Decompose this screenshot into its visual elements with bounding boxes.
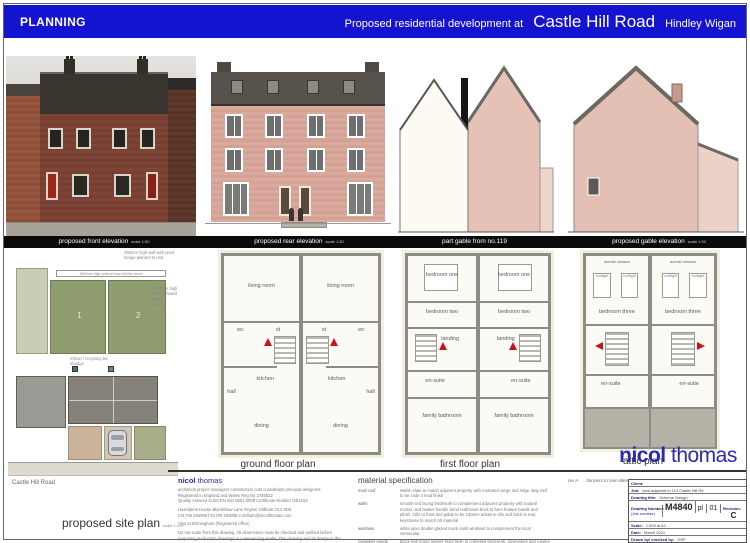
stairs [415,334,437,361]
person-figure [289,208,294,221]
house-right: dormer window rooflight rooflight bedroo… [650,253,717,449]
rooflight [343,80,355,94]
room-bedroom-one: bedroom one [426,272,458,278]
room-en-suite: en-suite [601,381,621,387]
drawing-number-value: M4840 [663,501,696,513]
planning-drawing-sheet: PLANNING Proposed residential developmen… [0,0,750,543]
bin-note: refuse / recycling bin storage [70,356,114,367]
company-quality: Quality Assured to BS EN ISO 9001:2008 C… [178,498,346,504]
room-hall: hall [366,389,375,395]
patio-doors-left [223,182,249,216]
drawn-by-value: GRF [677,537,685,542]
stair-arrow-icon [509,342,517,350]
ground-floor-window [114,174,131,197]
dormer-window-label: dormer window [670,260,696,264]
room-bedroom-one: bedroom one [498,272,530,278]
rooflight [231,80,243,94]
room-en-suite: en-suite [679,381,699,387]
rear-window [225,148,243,172]
front-garden-left [68,426,102,460]
rear-window [265,114,283,138]
rear-elevation-label: proposed rear elevationscale 1:50 [224,238,374,245]
spec-label: walls [358,501,400,523]
fence-note-top: 1800mm high vertical board timber fence [56,270,166,277]
job-value: land adjacent to 119 Castle Hill Rd [642,488,703,493]
revision-value: C [723,511,744,520]
roof-slope-area [585,407,649,447]
road-band [8,462,178,476]
house-right: bedroom one bedroom two landing en-suite… [478,253,551,455]
nicol-thomas-logo: nicol thomas [608,444,748,468]
site-plan: 450mm high wall with privit hedge plante… [8,250,178,512]
drawing-title-value: Scheme Design [659,495,687,500]
rear-window [347,148,365,172]
house-left: bedroom one bedroom two landing en-suite… [405,253,479,455]
new-gable-wall [468,68,540,232]
plot-1-number: 1 [77,311,81,320]
rear-window [225,114,243,138]
front-garden-right [134,426,166,460]
proposed-pair-roof [68,376,158,424]
material-specification-title: material specification [358,476,550,485]
brick-facade [40,114,168,222]
job-label: Job: [631,488,639,493]
planning-title: PLANNING [20,15,86,29]
rear-window [265,148,283,172]
rear-window [307,114,325,138]
first-floor-plan-title: first floor plan [400,459,540,470]
rear-brick-wall [211,106,385,222]
part-gable-label: part gable from no.119 [401,238,551,245]
stair-arrow-icon [264,338,272,346]
room-living: living room [327,283,354,289]
front-elevation-label: proposed front elevationscale 1:50 [29,238,179,245]
spec-text: black half round gutters fixed flush to … [400,539,550,543]
header-bar: PLANNING Proposed residential developmen… [4,5,746,38]
stairs [519,334,541,361]
company-disclaimer: Do not scale from this drawing. All dime… [178,530,346,543]
patio-doors-right [347,182,373,216]
footer-divider [168,470,746,472]
room-st: st [322,327,326,333]
plot-2-number: 2 [136,311,140,320]
ground-floor-window [72,174,89,197]
house-right: living room st wc kitchen hall dining [301,253,381,455]
ground-floor-plan: living room wc st kitchen hall dining li… [218,250,384,458]
garden-plot-1: 1 [50,280,106,354]
room-kitchen: kitchen [257,376,274,382]
scale-label: Scale: [631,523,643,528]
house-left: dormer window rooflight rooflight bedroo… [583,253,651,449]
stairs [671,332,696,366]
stair-arrow-icon [439,342,447,350]
company-contact: t:01706 293999 f:01706 293888 e:oldham@n… [178,513,346,519]
stairs [274,336,297,363]
date-label: Date: [631,530,641,535]
spec-label: rainwater goods [358,539,400,543]
rooflight: rooflight [593,273,610,298]
front-door-left [46,172,58,200]
room-st: st [276,327,280,333]
rooflight [267,80,279,94]
front-elevation-render [6,56,196,236]
adjacent-building-right [166,90,196,222]
header-subtitle: Proposed residential development at [345,18,524,30]
rear-outrigger-wall [540,168,553,232]
company-branch: Also at Birmingham (Registered office) [178,521,346,527]
stairs [605,332,630,366]
rear-roof [211,72,385,106]
parked-car [108,430,127,456]
first-floor-plan: bedroom one bedroom two landing en-suite… [402,250,554,458]
room-wc: wc [237,327,244,333]
ground-line [205,223,391,224]
room-kitchen: kitchen [328,376,345,382]
wall-note: 450mm high wall with privit hedge plante… [124,250,178,261]
spec-label: main roof [358,488,400,499]
rear-window [307,148,325,172]
rear-elevation-render [205,56,391,236]
existing-building-119-roof [16,376,66,428]
no119-gable-wall [400,80,468,232]
drawing-suffix: pl [696,504,708,513]
room-en-suite: en-suite [425,378,445,384]
gable-elevation-label: proposed gable elevationscale 1:50 [579,238,739,245]
attic-plan: dormer window rooflight rooflight bedroo… [580,250,720,452]
room-dining: dining [254,423,269,429]
room-bedroom-three: bedroom three [665,309,701,315]
gable-chimney [672,84,682,102]
client-label: Client: [631,481,643,486]
road-name-label: Castle Hill Road [12,480,55,486]
existing-garden [16,268,48,354]
rear-window [347,114,365,138]
job-number-sublabel: (Job number) [631,511,657,516]
drawn-by-label: Drawn by/ checked by: [631,537,674,542]
ground-floor-plan-title: ground floor plan [208,459,348,470]
pavement [6,222,196,236]
stair-arrow-icon [697,342,705,350]
gable-window [588,178,599,195]
dormer-window-label: dormer window [604,260,630,264]
rooflight [307,80,319,94]
chimney-left [64,59,75,74]
recycling-bin [72,366,78,372]
spec-text: smooth red facing brickwork to complemen… [400,501,550,523]
spec-text: white upvc double glazed mock sash windo… [400,526,550,537]
first-floor-window [48,128,63,149]
first-floor-window [140,128,155,149]
date-value: March 2021 [644,530,665,535]
room-en-suite: en-suite [511,378,531,384]
room-bedroom-two: bedroom two [498,309,530,315]
refuse-bin [108,366,114,372]
room-family-bathroom: family bathroom [490,413,538,419]
part-gable-drawing [396,60,556,236]
room-living: living room [248,283,275,289]
adjacent-building-left [6,96,44,222]
header-town: Hindley Wigan [665,18,736,30]
first-floor-window [76,128,91,149]
house-left: living room wc st kitchen hall dining [221,253,302,455]
rooflight: rooflight [621,273,638,298]
room-bedroom-two: bedroom two [426,309,458,315]
room-hall: hall [227,389,236,395]
rooflight: rooflight [689,273,706,298]
first-floor-window [112,128,127,149]
scale-value: 1:500 at A1 [646,523,666,528]
stairs [306,336,329,363]
company-name-small: nicol thomas [178,476,346,486]
front-door-right [146,172,158,200]
fence-note: 1800mm high vertical board timber fencin… [152,286,178,307]
rooflight: rooflight [662,273,679,298]
material-specification: material specification main roofWelsh sl… [358,476,550,543]
person-figure [298,208,303,221]
chimney-right [137,59,148,74]
stair-arrow-icon [595,342,603,350]
slate-roof [40,72,168,114]
title-block: Client: Job:land adjacent to 119 Castle … [628,479,747,543]
roof-slope-area [651,407,715,447]
room-wc: wc [358,327,365,333]
spec-label: windows [358,526,400,537]
room-family-bathroom: family bathroom [418,413,466,419]
elevation-label-bar: proposed front elevationscale 1:50 propo… [4,236,746,248]
sheet-number: 01 [707,504,721,513]
spec-text: Welsh slate to match adjacent property w… [400,488,550,499]
room-bedroom-three: bedroom three [599,309,635,315]
company-info-block: nicol thomas architects project managers… [178,476,346,543]
drawing-title-label: Drawing title: [631,495,656,500]
proposed-gable-drawing [560,60,748,236]
stair-arrow-icon [330,338,338,346]
room-dining: dining [333,423,348,429]
site-plan-title: proposed site planscale 1:100 [62,516,184,530]
header-road-name: Castle Hill Road [533,12,655,32]
